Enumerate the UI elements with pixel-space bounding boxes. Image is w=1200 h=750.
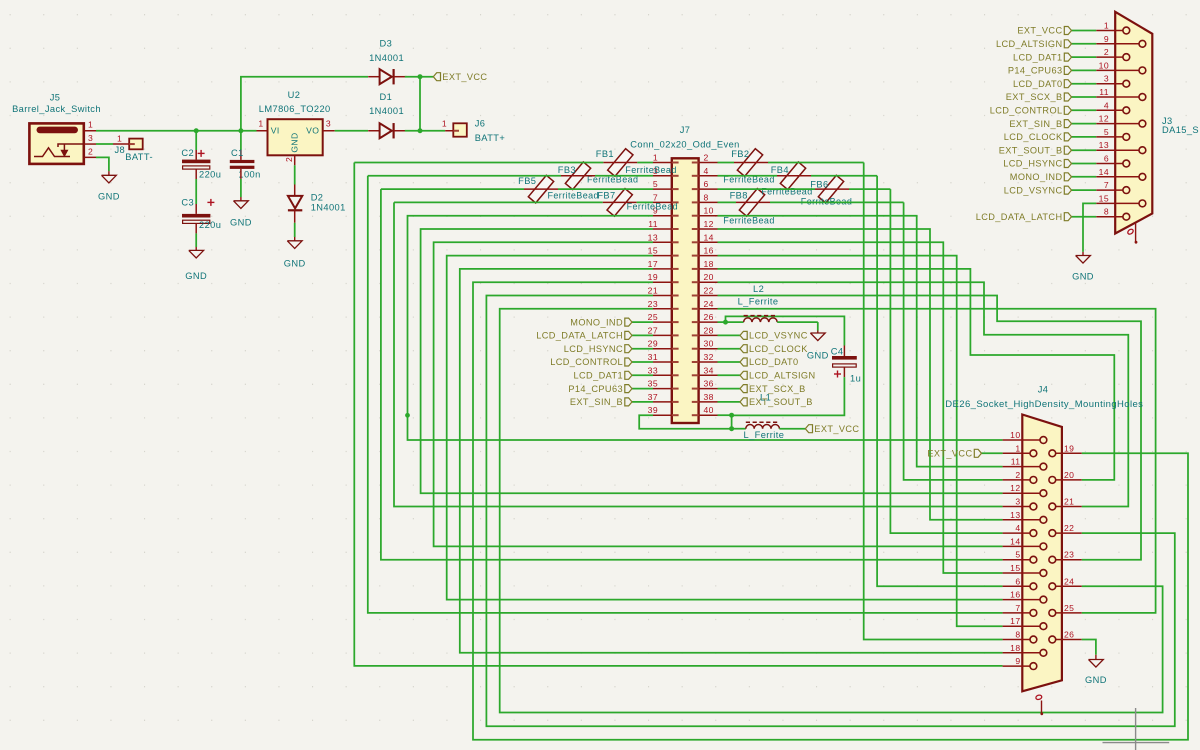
svg-text:EXT_SCX_B: EXT_SCX_B xyxy=(1006,92,1063,102)
svg-text:14: 14 xyxy=(704,232,714,242)
svg-text:J4: J4 xyxy=(1038,385,1049,395)
svg-text:10: 10 xyxy=(704,206,714,216)
svg-text:7: 7 xyxy=(1015,603,1020,613)
svg-text:2: 2 xyxy=(704,153,709,163)
svg-text:4: 4 xyxy=(1015,523,1020,533)
svg-text:3: 3 xyxy=(326,119,331,129)
svg-text:36: 36 xyxy=(704,379,714,389)
svg-text:LCD_DAT1: LCD_DAT1 xyxy=(1013,52,1063,62)
svg-text:1: 1 xyxy=(88,120,93,130)
svg-text:FB2: FB2 xyxy=(731,149,749,159)
svg-text:27: 27 xyxy=(648,325,658,335)
svg-text:FerriteBead: FerriteBead xyxy=(723,216,774,226)
svg-text:LCD_ALTSIGN: LCD_ALTSIGN xyxy=(996,39,1063,49)
svg-text:Conn_02x20_Odd_Even: Conn_02x20_Odd_Even xyxy=(630,139,739,149)
svg-text:24: 24 xyxy=(704,299,714,309)
svg-text:1: 1 xyxy=(1104,21,1109,31)
svg-text:GND: GND xyxy=(98,191,120,201)
svg-text:12: 12 xyxy=(1099,114,1109,124)
svg-text:BATT-: BATT- xyxy=(125,152,153,162)
svg-text:7: 7 xyxy=(1104,180,1109,190)
svg-text:GND: GND xyxy=(290,132,300,152)
svg-text:10: 10 xyxy=(1010,430,1020,440)
svg-text:LCD_DATA_LATCH: LCD_DATA_LATCH xyxy=(976,212,1063,222)
svg-text:L1: L1 xyxy=(760,393,771,403)
svg-text:38: 38 xyxy=(704,392,714,402)
svg-text:LCD_VSYNC: LCD_VSYNC xyxy=(1004,185,1063,195)
svg-text:9: 9 xyxy=(1104,34,1109,44)
svg-text:P14_CPU63: P14_CPU63 xyxy=(568,384,623,394)
svg-text:FerriteBead: FerriteBead xyxy=(625,165,676,175)
svg-text:11: 11 xyxy=(648,219,658,229)
svg-text:FB4: FB4 xyxy=(771,165,789,175)
svg-text:8: 8 xyxy=(1015,630,1020,640)
svg-text:220u: 220u xyxy=(199,220,221,230)
svg-text:5: 5 xyxy=(1104,127,1109,137)
svg-text:34: 34 xyxy=(704,365,714,375)
svg-text:2: 2 xyxy=(1015,470,1020,480)
svg-text:31: 31 xyxy=(648,352,658,362)
svg-text:13: 13 xyxy=(1099,140,1109,150)
svg-text:FB5: FB5 xyxy=(518,176,536,186)
svg-text:GND: GND xyxy=(185,271,207,281)
svg-text:D1: D1 xyxy=(379,92,392,102)
svg-text:39: 39 xyxy=(648,405,658,415)
svg-text:VO: VO xyxy=(306,125,319,135)
svg-text:18: 18 xyxy=(704,259,714,269)
svg-text:15: 15 xyxy=(1099,193,1109,203)
svg-text:21: 21 xyxy=(1064,497,1074,507)
svg-text:1: 1 xyxy=(442,118,447,128)
svg-text:5: 5 xyxy=(1015,550,1020,560)
svg-text:11: 11 xyxy=(1099,87,1109,97)
svg-text:35: 35 xyxy=(648,379,658,389)
svg-text:5: 5 xyxy=(653,179,658,189)
svg-text:L_Ferrite: L_Ferrite xyxy=(744,430,785,440)
svg-text:26: 26 xyxy=(1064,630,1074,640)
svg-text:14: 14 xyxy=(1099,167,1109,177)
svg-text:1N4001: 1N4001 xyxy=(369,53,404,63)
svg-text:J6: J6 xyxy=(475,118,486,128)
svg-text:LCD_DAT0: LCD_DAT0 xyxy=(749,357,799,367)
svg-text:J7: J7 xyxy=(680,125,691,135)
svg-text:3: 3 xyxy=(1015,497,1020,507)
svg-text:EXT_SIN_B: EXT_SIN_B xyxy=(1009,119,1062,129)
svg-text:LCD_HSYNC: LCD_HSYNC xyxy=(1003,159,1062,169)
svg-text:MONO_IND: MONO_IND xyxy=(570,317,623,327)
svg-text:12: 12 xyxy=(1010,483,1020,493)
svg-text:3: 3 xyxy=(1104,74,1109,84)
svg-text:4: 4 xyxy=(704,166,709,176)
svg-text:10: 10 xyxy=(1099,60,1109,70)
svg-text:16: 16 xyxy=(1010,590,1020,600)
svg-text:DE26_Socket_HighDensity_Mounti: DE26_Socket_HighDensity_MountingHoles xyxy=(945,399,1143,410)
svg-text:LCD_DATA_LATCH: LCD_DATA_LATCH xyxy=(536,331,623,341)
svg-text:C4: C4 xyxy=(831,346,844,356)
svg-text:U2: U2 xyxy=(288,90,301,100)
svg-text:C3: C3 xyxy=(181,198,194,208)
svg-text:33: 33 xyxy=(648,365,658,375)
svg-text:13: 13 xyxy=(1010,510,1020,520)
svg-text:25: 25 xyxy=(1064,603,1074,613)
svg-text:FerriteBead: FerriteBead xyxy=(548,190,599,200)
svg-text:37: 37 xyxy=(648,392,658,402)
svg-text:VI: VI xyxy=(271,125,280,135)
svg-text:EXT_SOUT_B: EXT_SOUT_B xyxy=(749,397,813,407)
svg-text:19: 19 xyxy=(648,272,658,282)
svg-text:15: 15 xyxy=(648,246,658,256)
svg-text:2: 2 xyxy=(284,157,294,162)
svg-text:30: 30 xyxy=(704,339,714,349)
svg-text:1: 1 xyxy=(653,153,658,163)
svg-text:23: 23 xyxy=(1064,550,1074,560)
svg-text:EXT_VCC: EXT_VCC xyxy=(1017,26,1062,36)
svg-text:GND: GND xyxy=(230,217,252,227)
svg-text:EXT_VCC: EXT_VCC xyxy=(814,424,859,434)
svg-text:C1: C1 xyxy=(231,148,244,158)
svg-text:1u: 1u xyxy=(850,374,861,384)
svg-text:8: 8 xyxy=(704,192,709,202)
svg-text:1: 1 xyxy=(1015,443,1020,453)
svg-text:17: 17 xyxy=(1010,616,1020,626)
svg-text:EXT_SOUT_B: EXT_SOUT_B xyxy=(999,145,1063,155)
svg-text:DA15_S: DA15_S xyxy=(1162,125,1199,135)
svg-text:17: 17 xyxy=(648,259,658,269)
svg-text:LCD_CLOCK: LCD_CLOCK xyxy=(749,344,808,354)
svg-text:220u: 220u xyxy=(199,170,221,180)
svg-text:LCD_DAT1: LCD_DAT1 xyxy=(574,371,624,381)
svg-text:C2: C2 xyxy=(181,148,194,158)
svg-text:LCD_CONTROL: LCD_CONTROL xyxy=(550,357,623,367)
svg-text:FB6: FB6 xyxy=(810,179,828,189)
svg-text:28: 28 xyxy=(704,325,714,335)
svg-text:3: 3 xyxy=(88,133,93,143)
svg-text:1: 1 xyxy=(117,133,122,143)
svg-text:6: 6 xyxy=(1015,576,1020,586)
svg-text:9: 9 xyxy=(1015,656,1020,666)
svg-text:6: 6 xyxy=(704,179,709,189)
svg-text:FB7: FB7 xyxy=(597,190,615,200)
svg-text:18: 18 xyxy=(1010,643,1020,653)
svg-text:LCD_HSYNC: LCD_HSYNC xyxy=(564,344,623,354)
svg-text:40: 40 xyxy=(704,405,714,415)
svg-text:8: 8 xyxy=(1104,207,1109,217)
svg-text:LCD_VSYNC: LCD_VSYNC xyxy=(749,331,808,341)
svg-text:32: 32 xyxy=(704,352,714,362)
svg-text:2: 2 xyxy=(1104,47,1109,57)
svg-text:Barrel_Jack_Switch: Barrel_Jack_Switch xyxy=(12,104,101,114)
svg-text:24: 24 xyxy=(1064,576,1074,586)
svg-text:2: 2 xyxy=(88,146,93,156)
svg-text:29: 29 xyxy=(648,339,658,349)
svg-text:1: 1 xyxy=(258,119,263,129)
svg-text:11: 11 xyxy=(1011,457,1021,467)
svg-text:LM7806_TO220: LM7806_TO220 xyxy=(259,104,331,114)
svg-text:EXT_SCX_B: EXT_SCX_B xyxy=(749,384,806,394)
svg-text:13: 13 xyxy=(648,232,658,242)
svg-text:EXT_VCC: EXT_VCC xyxy=(442,72,487,82)
svg-text:21: 21 xyxy=(648,286,658,296)
svg-text:GND: GND xyxy=(1072,272,1094,282)
svg-text:LCD_DAT0: LCD_DAT0 xyxy=(1013,79,1063,89)
svg-text:D2: D2 xyxy=(311,192,324,202)
svg-text:LCD_CONTROL: LCD_CONTROL xyxy=(990,106,1063,116)
svg-text:EXT_SIN_B: EXT_SIN_B xyxy=(570,397,623,407)
svg-text:GND: GND xyxy=(807,350,829,360)
svg-text:16: 16 xyxy=(704,246,714,256)
svg-text:LCD_CLOCK: LCD_CLOCK xyxy=(1004,132,1063,142)
svg-text:P14_CPU63: P14_CPU63 xyxy=(1008,66,1063,76)
svg-text:GND: GND xyxy=(1085,675,1107,685)
svg-text:L2: L2 xyxy=(753,284,764,294)
svg-text:BATT+: BATT+ xyxy=(475,133,506,143)
svg-text:EXT_VCC: EXT_VCC xyxy=(927,449,972,459)
svg-text:22: 22 xyxy=(1064,523,1074,533)
svg-text:25: 25 xyxy=(648,312,658,322)
svg-text:22: 22 xyxy=(704,286,714,296)
svg-text:FB1: FB1 xyxy=(596,149,614,159)
svg-text:20: 20 xyxy=(1064,470,1074,480)
svg-text:MONO_IND: MONO_IND xyxy=(1010,172,1063,182)
svg-text:15: 15 xyxy=(1010,563,1020,573)
svg-text:4: 4 xyxy=(1104,100,1109,110)
svg-text:1N4001: 1N4001 xyxy=(311,202,346,212)
svg-text:FB3: FB3 xyxy=(558,165,576,175)
svg-text:6: 6 xyxy=(1104,154,1109,164)
svg-text:J8: J8 xyxy=(115,145,126,155)
svg-text:23: 23 xyxy=(648,299,658,309)
svg-text:GND: GND xyxy=(284,259,306,269)
svg-text:FerriteBead: FerriteBead xyxy=(761,187,812,197)
svg-text:20: 20 xyxy=(704,272,714,282)
svg-text:12: 12 xyxy=(704,219,714,229)
svg-text:1N4001: 1N4001 xyxy=(369,106,404,116)
svg-text:L_Ferrite: L_Ferrite xyxy=(738,297,779,307)
svg-text:D3: D3 xyxy=(379,38,392,48)
svg-text:FB8: FB8 xyxy=(730,190,748,200)
svg-text:14: 14 xyxy=(1010,536,1020,546)
svg-text:100n: 100n xyxy=(238,170,260,180)
svg-text:19: 19 xyxy=(1064,443,1074,453)
svg-text:26: 26 xyxy=(704,312,714,322)
svg-text:LCD_ALTSIGN: LCD_ALTSIGN xyxy=(749,371,816,381)
svg-text:J5: J5 xyxy=(50,93,61,103)
